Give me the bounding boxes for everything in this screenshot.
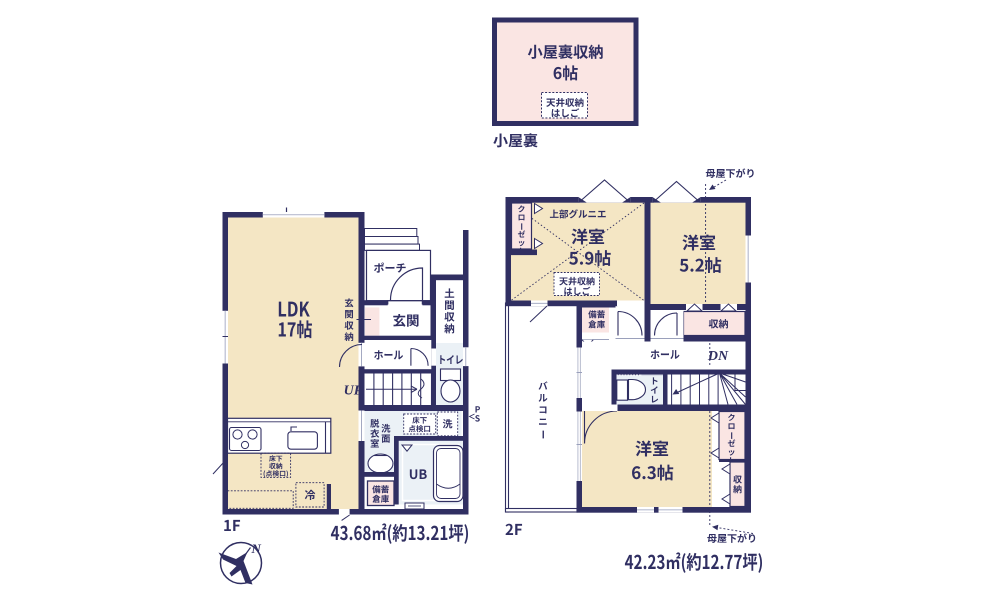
- svg-text:N: N: [251, 541, 262, 556]
